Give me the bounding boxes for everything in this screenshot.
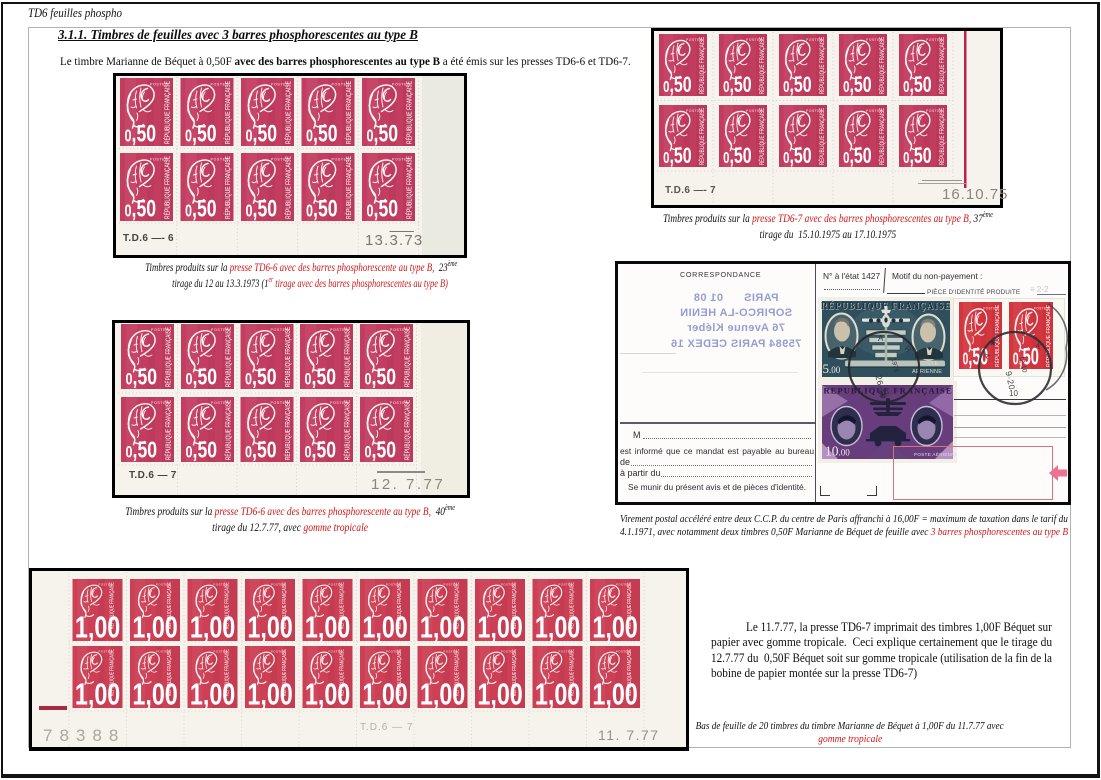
svg-text:9·20: 9·20 [1004,370,1018,391]
svg-text:A: A [878,334,884,343]
svg-text:78388: 78388 [43,726,125,745]
svg-text:10: 10 [1009,389,1018,398]
svg-text:A: A [982,350,993,360]
svg-text:✱: ✱ [988,337,998,348]
svg-text:✱: ✱ [879,391,886,400]
svg-text:R: R [903,344,913,355]
svg-text:T.D.6 — 7: T.D.6 — 7 [360,722,413,733]
svg-text:1976: 1976 [889,357,899,373]
svg-text:12-10: 12-10 [1017,355,1027,373]
